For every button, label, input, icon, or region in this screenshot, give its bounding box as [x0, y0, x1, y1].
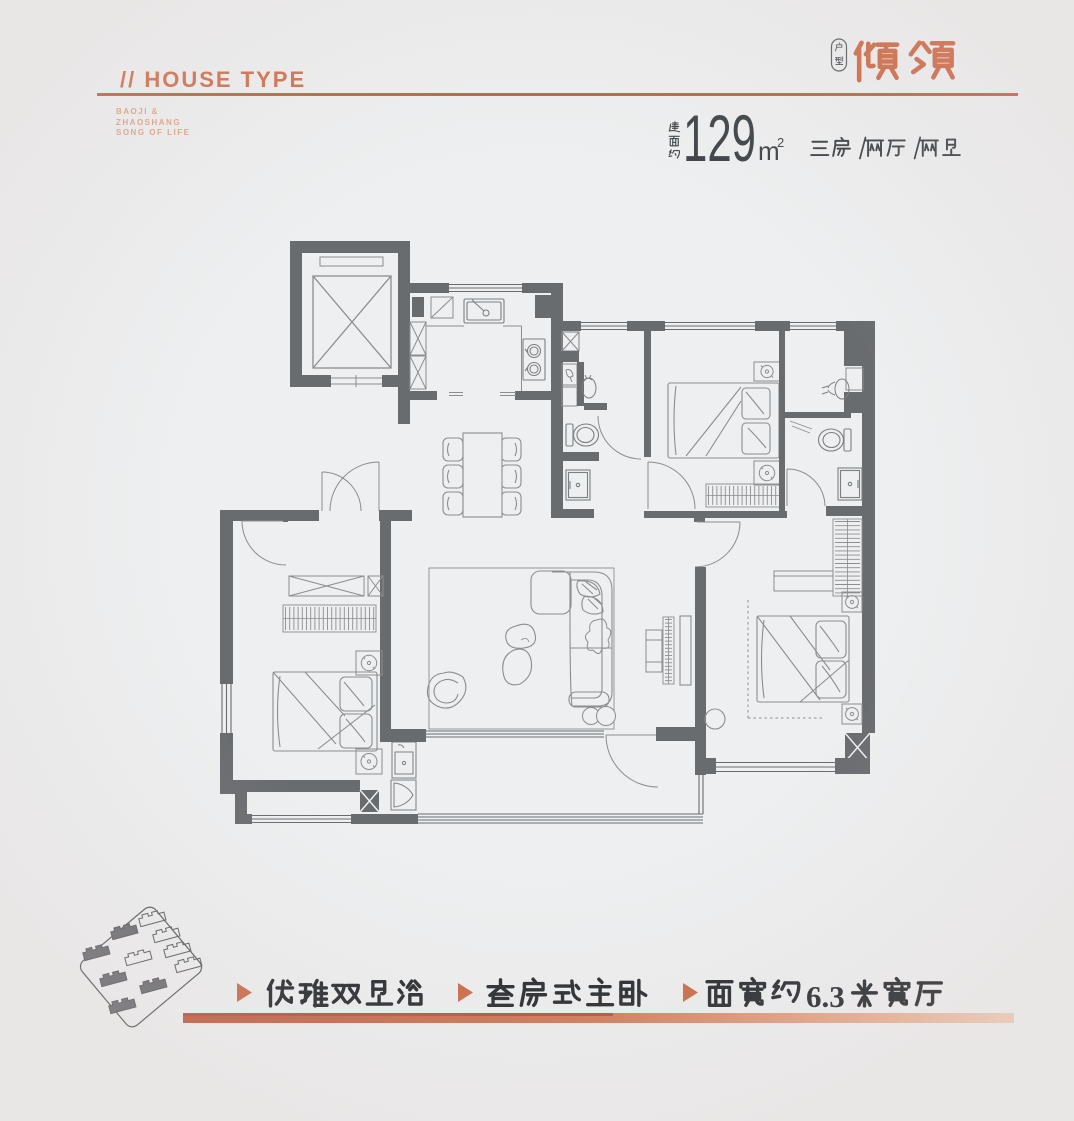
- svg-text:6.3: 6.3: [806, 979, 845, 1014]
- svg-text:2: 2: [777, 135, 784, 150]
- svg-text:129: 129: [683, 101, 756, 175]
